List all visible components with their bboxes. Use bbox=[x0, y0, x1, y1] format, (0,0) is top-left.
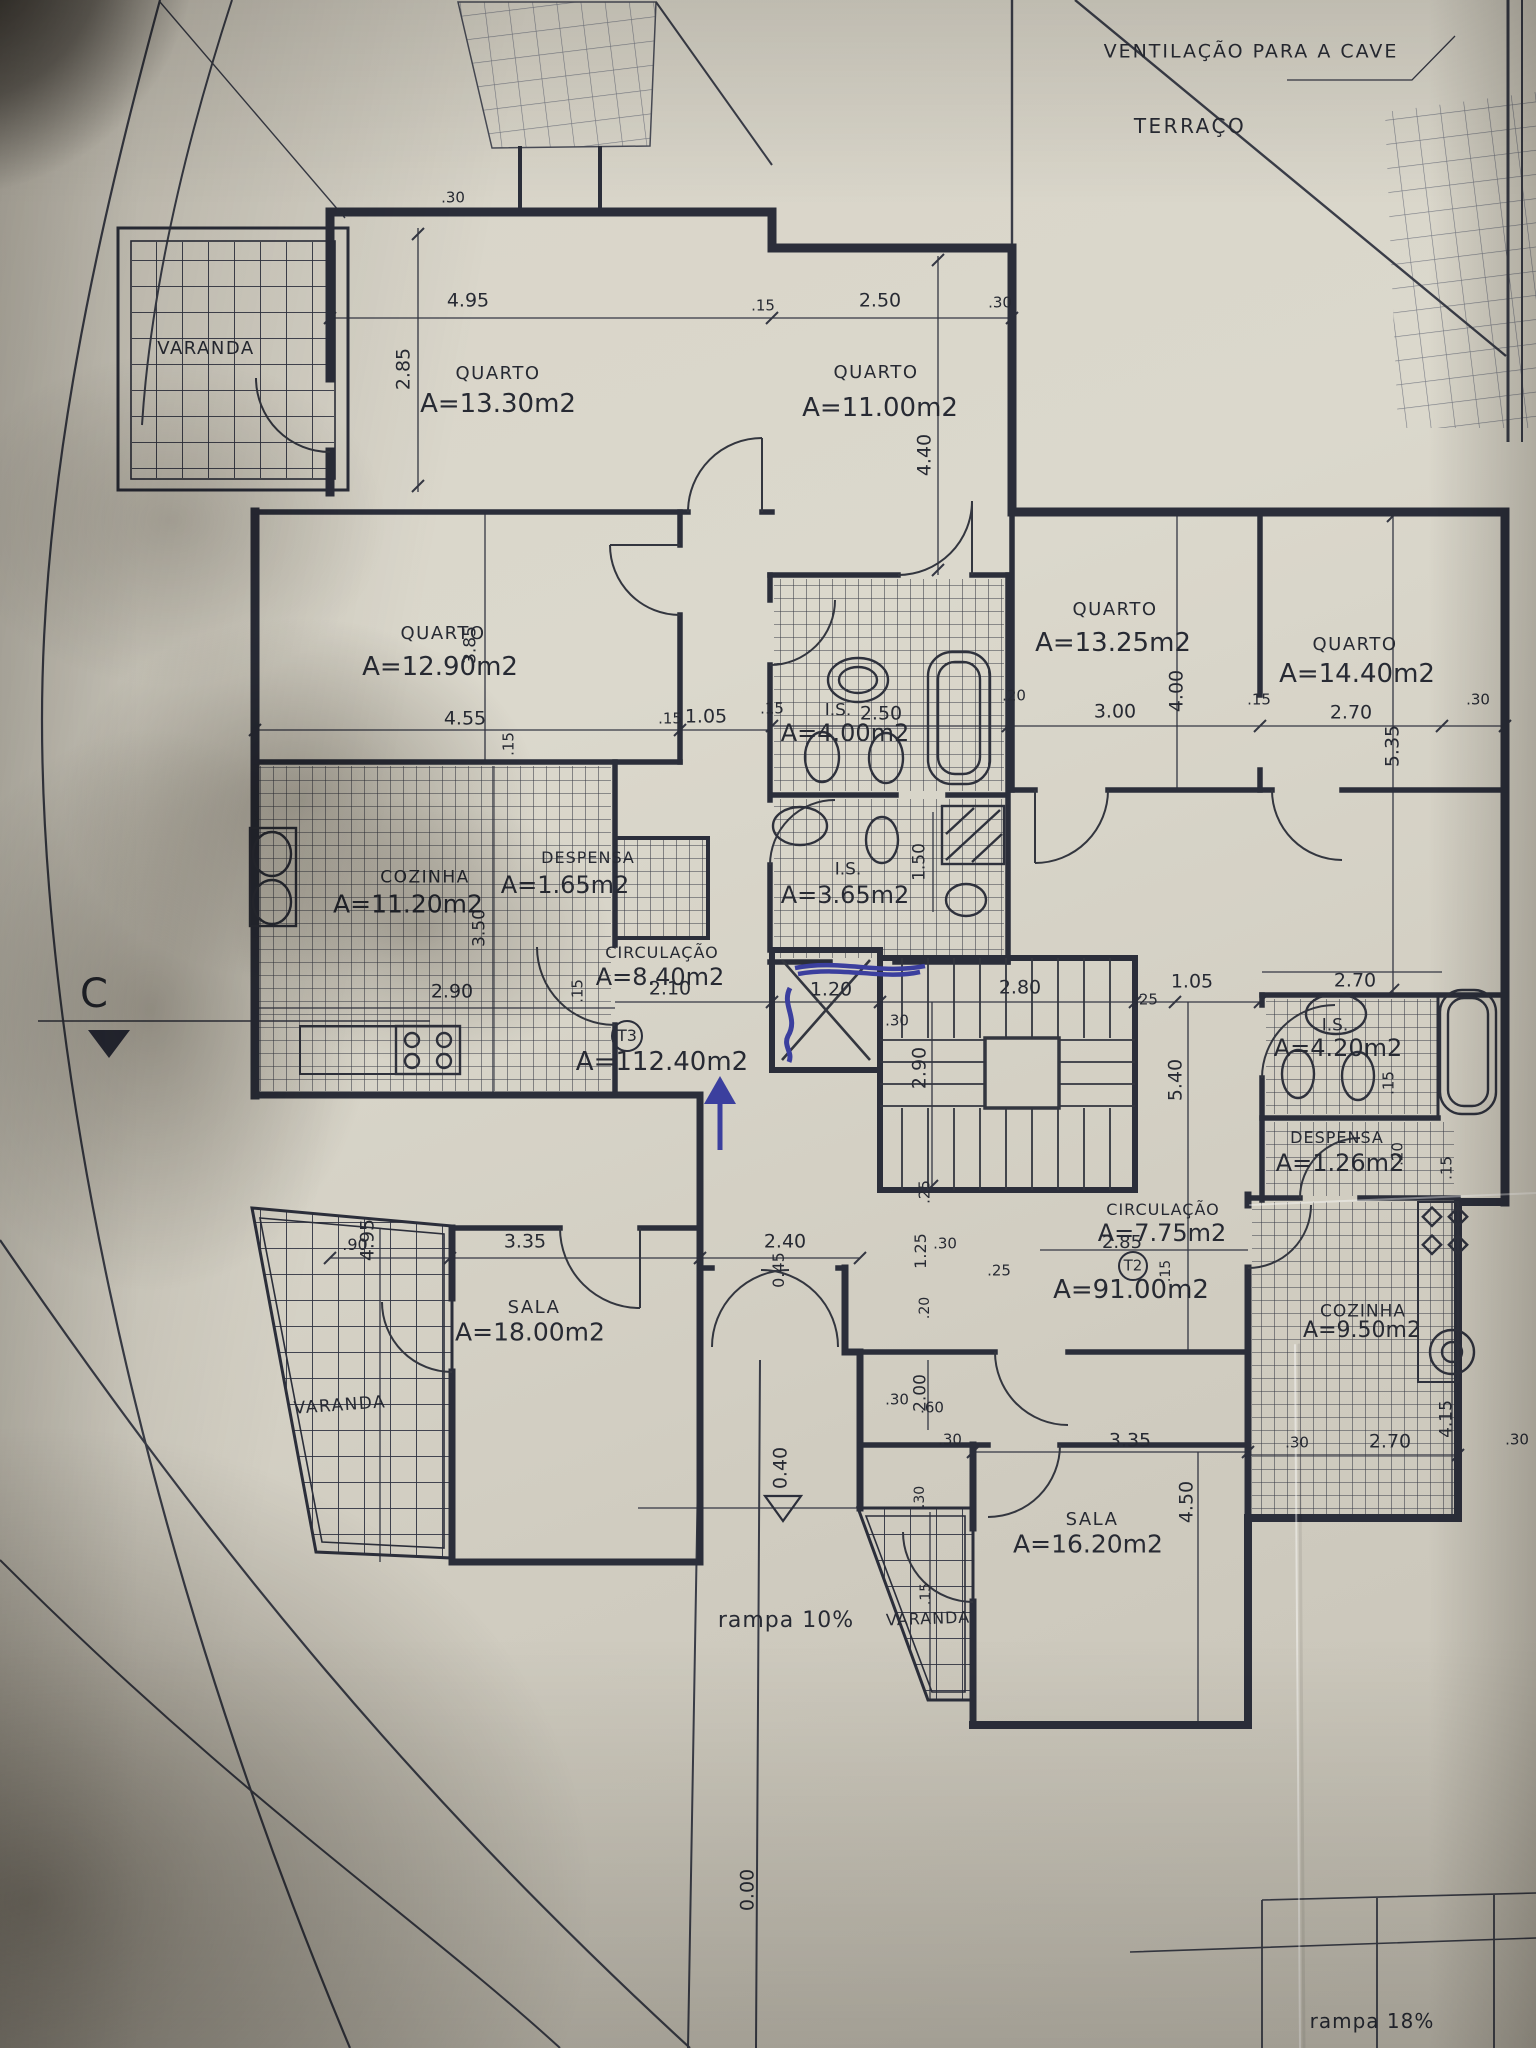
quarto4-area: A=13.25m2 bbox=[1035, 630, 1191, 656]
dim-450-v: 4.50 bbox=[1178, 1481, 1197, 1523]
dim-30-var-v: .30 bbox=[913, 1486, 927, 1508]
dim-455: 4.55 bbox=[444, 710, 486, 729]
dim-385-v: 3.85 bbox=[463, 626, 480, 664]
floor-plan-photo: VENTILAÇÃO PARA A CAVETERRAÇOCVARANDAQUA… bbox=[0, 0, 1536, 2048]
dim-290-stair-v: 2.90 bbox=[911, 1047, 930, 1089]
level-040: 0.40 bbox=[772, 1447, 791, 1489]
dim-240-entry: 2.40 bbox=[764, 1233, 806, 1252]
dim-30-top-left: .30 bbox=[441, 191, 465, 206]
dim-335-sala2: 3.35 bbox=[1109, 1432, 1151, 1451]
dim-210-circ: 2.10 bbox=[649, 980, 691, 999]
t2-area: A=91.00m2 bbox=[1053, 1277, 1209, 1303]
dim-495-top: 4.95 bbox=[447, 292, 489, 311]
terrace-label: TERRAÇO bbox=[1134, 116, 1246, 136]
dim-400-v: 4.00 bbox=[1168, 670, 1187, 712]
dim-125-v: 1.25 bbox=[913, 1233, 929, 1269]
sala1-area: A=18.00m2 bbox=[455, 1320, 605, 1345]
dim-30-q5: .30 bbox=[1466, 693, 1490, 708]
dim-300: 3.00 bbox=[1094, 703, 1136, 722]
dim-290-coz: 2.90 bbox=[431, 983, 473, 1002]
dim-15-var-v: .15 bbox=[919, 1583, 933, 1605]
varanda-top-left: VARANDA bbox=[157, 340, 254, 358]
dim-280-stair: 2.80 bbox=[999, 979, 1041, 998]
is3-name: I.S. bbox=[1322, 1018, 1349, 1035]
quarto1-area: A=13.30m2 bbox=[420, 391, 576, 417]
dim-15-is3: .15 bbox=[1382, 1071, 1397, 1095]
t2-id: T2 bbox=[1124, 1259, 1143, 1274]
despensa2-name: DESPENSA bbox=[1290, 1130, 1384, 1146]
section-c: C bbox=[80, 974, 108, 1014]
varanda-left: VARANDA bbox=[293, 1394, 387, 1417]
dim-30-vest: .30 bbox=[885, 1393, 909, 1408]
sala1-name: SALA bbox=[508, 1299, 561, 1317]
dim-120-elev: 1.20 bbox=[810, 981, 852, 1000]
despensa1-name: DESPENSA bbox=[541, 850, 635, 866]
sala2-name: SALA bbox=[1066, 1511, 1119, 1529]
dim-20-desp2: .20 bbox=[1391, 1142, 1406, 1166]
level-000: 0.00 bbox=[739, 1869, 758, 1911]
dim-15-q5: .15 bbox=[1247, 693, 1271, 708]
is1-name: I.S. bbox=[825, 703, 852, 720]
t3-area: A=112.40m2 bbox=[576, 1049, 748, 1075]
quarto5-name: QUARTO bbox=[1312, 636, 1397, 654]
dim-15-top-mid: .15 bbox=[751, 299, 775, 314]
dim-30-top-right: .30 bbox=[988, 296, 1012, 311]
varanda-bottom: VARANDA bbox=[886, 1610, 971, 1629]
ramp-right: rampa 18% bbox=[1310, 2011, 1435, 2031]
dim-270-coz2: 2.70 bbox=[1369, 1433, 1411, 1452]
quarto5-area: A=14.40m2 bbox=[1279, 661, 1435, 687]
is3-area: A=4.20m2 bbox=[1274, 1036, 1403, 1060]
dim-105-right: 1.05 bbox=[1171, 973, 1213, 992]
dim-285-v: 2.85 bbox=[395, 348, 414, 390]
dim-30-coz2-l: .30 bbox=[1285, 1436, 1309, 1451]
quarto3-area: A=12.90m2 bbox=[362, 654, 518, 680]
dim-30-stair: .30 bbox=[885, 1014, 909, 1029]
dim-20-entry: .20 bbox=[918, 1297, 932, 1319]
sala2-area: A=16.20m2 bbox=[1013, 1532, 1163, 1557]
dim-15-t2: .15 bbox=[1159, 1260, 1173, 1282]
dim-30-sala2: .30 bbox=[938, 1433, 962, 1448]
dim-20-shaft: .20 bbox=[1002, 689, 1026, 704]
dim-535-v: 5.35 bbox=[1384, 725, 1403, 767]
dim-285-t2: 2.85 bbox=[1102, 1234, 1142, 1252]
dim-105-left: 1.05 bbox=[685, 708, 727, 727]
cozinha2-area: A=9.50m2 bbox=[1303, 1320, 1421, 1342]
dim-270-q5: 2.70 bbox=[1330, 704, 1372, 723]
quarto1-name: QUARTO bbox=[455, 365, 540, 383]
dim-335-sala1: 3.35 bbox=[504, 1233, 546, 1252]
ramp-left: rampa 10% bbox=[718, 1610, 854, 1632]
dim-15-q3: .15 bbox=[502, 732, 517, 756]
quarto4-name: QUARTO bbox=[1072, 601, 1157, 619]
dim-15-is: .15 bbox=[760, 702, 784, 717]
despensa1-area: A=1.65m2 bbox=[501, 873, 630, 897]
dim-250-is: 2.50 bbox=[860, 705, 902, 724]
despensa2-area: A=1.26m2 bbox=[1276, 1151, 1405, 1175]
circulacao1-name: CIRCULAÇÃO bbox=[605, 945, 718, 961]
dim-350-v: 3.50 bbox=[472, 909, 489, 947]
circulacao2-name: CIRCULAÇÃO bbox=[1106, 1202, 1219, 1218]
dim-250-top: 2.50 bbox=[859, 292, 901, 311]
dim-270-is3: 2.70 bbox=[1334, 972, 1376, 991]
is2-area: A=3.65m2 bbox=[781, 883, 910, 907]
quarto2-name: QUARTO bbox=[833, 364, 918, 382]
dim-495-sala1-v: 4.95 bbox=[359, 1219, 378, 1261]
dim-440-v: 4.40 bbox=[916, 434, 935, 476]
cozinha1-name: COZINHA bbox=[380, 870, 470, 887]
cozinha1-area: A=11.20m2 bbox=[333, 892, 483, 917]
dim-150-v: 1.50 bbox=[912, 843, 929, 881]
dim-15-desp2: .15 bbox=[1440, 1156, 1455, 1180]
dim-045-v: 0.45 bbox=[771, 1252, 787, 1288]
is2-name: I.S. bbox=[835, 862, 862, 879]
dim-25-entry: .25 bbox=[987, 1264, 1011, 1279]
dim-25-stair: .25 bbox=[1134, 993, 1158, 1008]
dim-415-v: 4.15 bbox=[1439, 1400, 1456, 1438]
dim-25-stair-v: .25 bbox=[918, 1180, 933, 1204]
labels-layer: VENTILAÇÃO PARA A CAVETERRAÇOCVARANDAQUA… bbox=[0, 0, 1536, 2048]
dim-30-entry: .30 bbox=[933, 1237, 957, 1252]
dim-15-coz: .15 bbox=[571, 979, 586, 1003]
dim-15-mid: .15 bbox=[658, 712, 682, 727]
dim-30-coz2-r: .30 bbox=[1505, 1433, 1529, 1448]
dim-540-v: 5.40 bbox=[1167, 1059, 1186, 1101]
quarto2-area: A=11.00m2 bbox=[802, 395, 958, 421]
ventilation-note: VENTILAÇÃO PARA A CAVE bbox=[1104, 43, 1399, 62]
is1-area: A=4.00m2 bbox=[781, 721, 910, 745]
dim-60-vest: .60 bbox=[920, 1401, 944, 1416]
t3-id: T3 bbox=[617, 1028, 637, 1044]
